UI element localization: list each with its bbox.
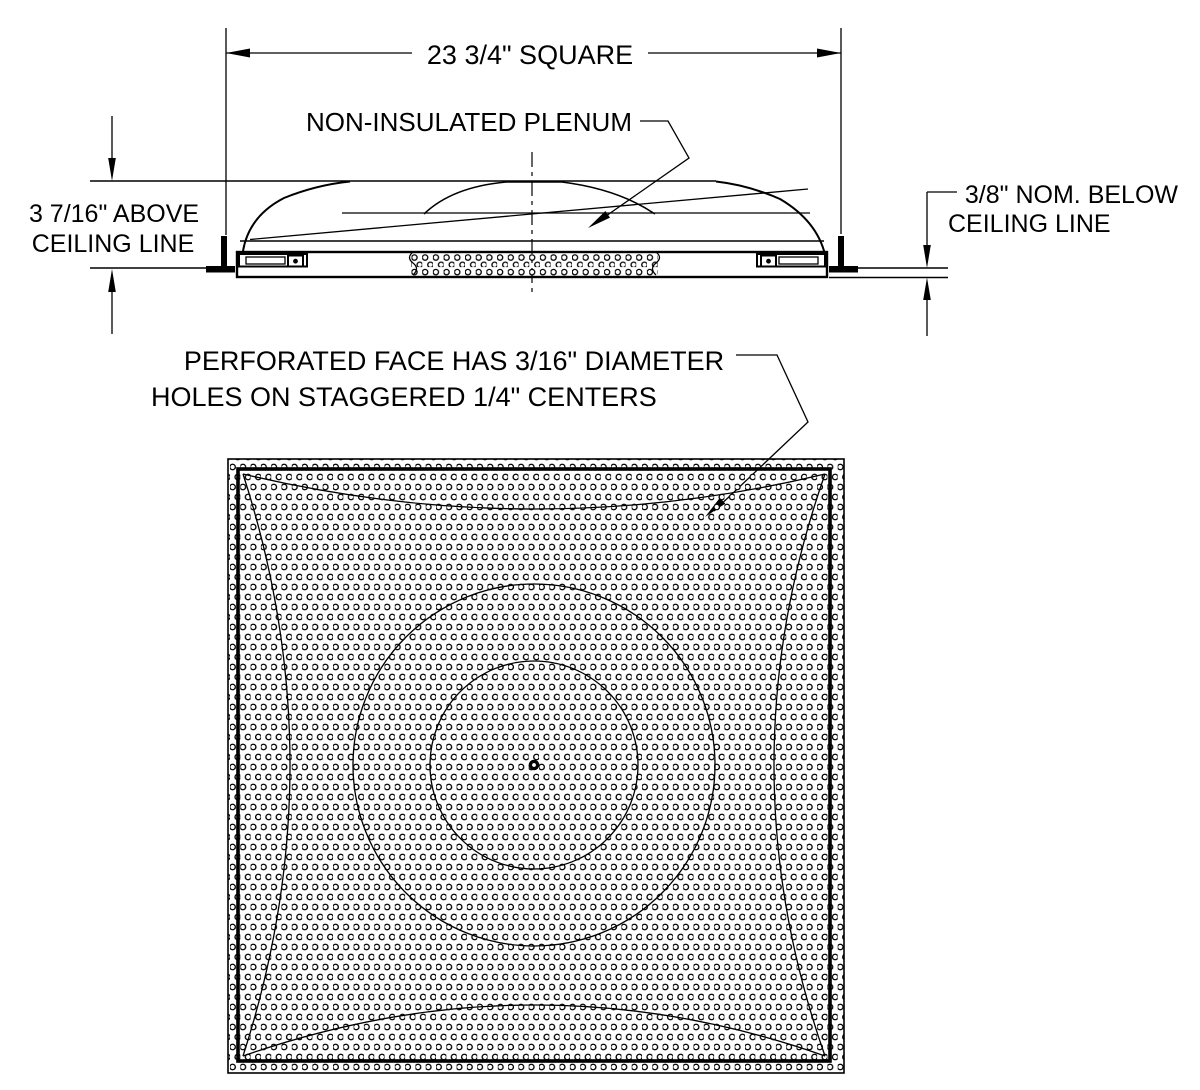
tbar-web <box>838 236 844 268</box>
latch-slide <box>246 257 285 264</box>
latch-left <box>239 254 307 267</box>
tbar-flange <box>206 266 235 273</box>
tbar-flange <box>829 266 858 273</box>
technical-drawing-page: 23 3/4" SQUARE NON-INSULATED PLENUM 3 7/… <box>0 0 1200 1090</box>
perforation-note-line2: HOLES ON STAGGERED 1/4" CENTERS <box>151 382 657 412</box>
perforated-strip <box>411 253 658 276</box>
arrowhead-left <box>226 49 250 58</box>
arrowhead-right <box>817 49 841 58</box>
plenum-label: NON-INSULATED PLENUM <box>306 107 632 137</box>
arrowhead-down <box>108 158 116 181</box>
ceiling-tbar-left <box>206 236 235 273</box>
plan-view <box>228 459 844 1073</box>
latch-pin <box>766 259 771 264</box>
arrowhead-down <box>923 245 931 268</box>
above-dimension-text-line2: CEILING LINE <box>32 230 195 258</box>
above-ceiling-dimension: 3 7/16" ABOVE CEILING LINE <box>29 116 716 334</box>
tbar-web <box>221 236 227 268</box>
above-dimension-text-line1: 3 7/16" ABOVE <box>29 200 199 228</box>
ceiling-tbar-right <box>829 236 858 273</box>
center-fastener <box>530 761 537 768</box>
below-ceiling-dimension: 3/8" NOM. BELOW CEILING LINE <box>829 181 1178 336</box>
backpan-diagonal-line <box>250 189 808 240</box>
latch-pin <box>293 259 298 264</box>
latch-slide <box>779 257 818 264</box>
plenum-callout: NON-INSULATED PLENUM <box>306 107 689 228</box>
below-dimension-text-line2: CEILING LINE <box>948 210 1111 238</box>
diffuser-technical-drawing: 23 3/4" SQUARE NON-INSULATED PLENUM 3 7/… <box>0 0 1200 1090</box>
section-view: 23 3/4" SQUARE NON-INSULATED PLENUM 3 7/… <box>29 28 1178 336</box>
arrowhead-up <box>923 278 931 301</box>
arrowhead-up <box>108 269 116 292</box>
plenum-dome-curve <box>424 182 655 214</box>
below-dimension-text-line1: 3/8" NOM. BELOW <box>965 181 1178 209</box>
skirt-right-profile <box>716 182 826 260</box>
width-dimension-text: 23 3/4" SQUARE <box>427 40 633 70</box>
diffuser-body-section <box>237 152 827 292</box>
perforation-note-line1: PERFORATED FACE HAS 3/16" DIAMETER <box>184 346 724 376</box>
latch-right <box>757 254 825 267</box>
